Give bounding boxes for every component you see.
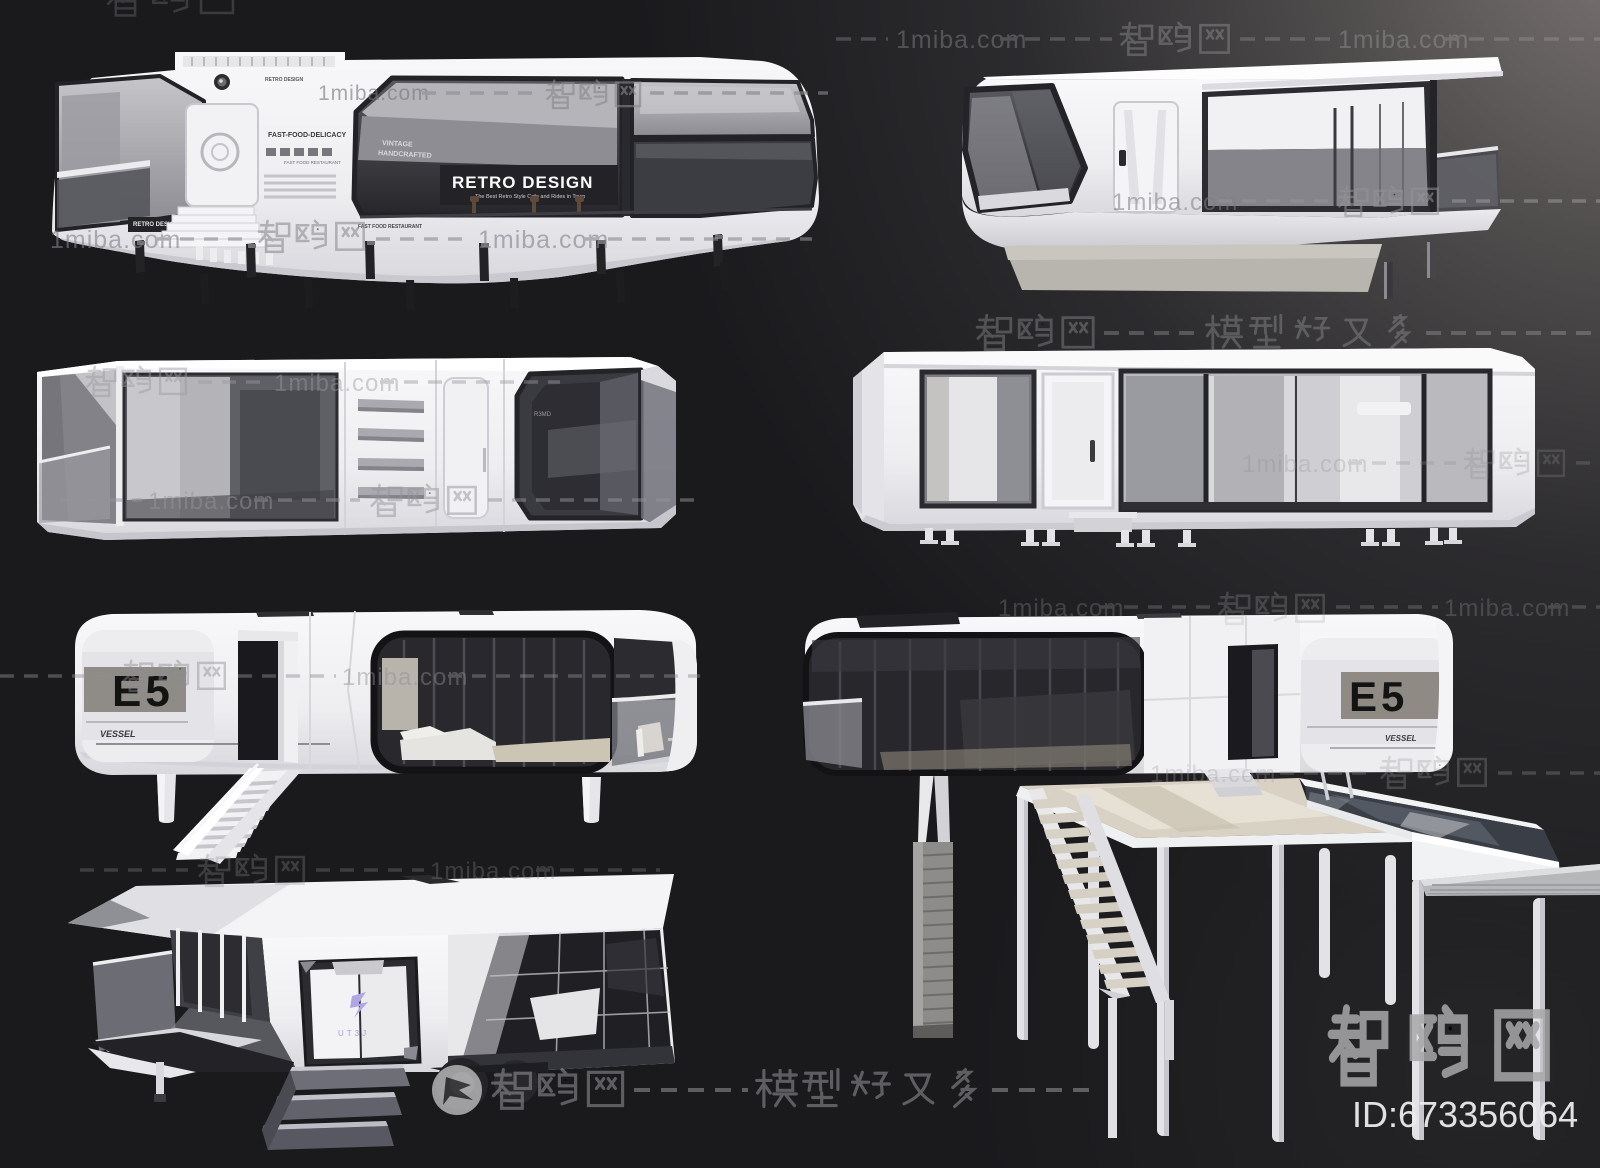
svg-text:VESSEL: VESSEL bbox=[100, 729, 136, 739]
svg-text:UT3J: UT3J bbox=[338, 1029, 369, 1038]
svg-text:ID:673356064: ID:673356064 bbox=[1352, 1094, 1578, 1135]
svg-text:R3MD: R3MD bbox=[534, 412, 552, 418]
svg-text:FAST FOOD RESTAURANT: FAST FOOD RESTAURANT bbox=[284, 160, 341, 165]
svg-text:E5: E5 bbox=[1349, 673, 1408, 720]
svg-text:RETRO DESIGN: RETRO DESIGN bbox=[265, 77, 303, 83]
svg-text:VESSEL: VESSEL bbox=[1385, 734, 1417, 743]
svg-text:FAST FOOD RESTAURANT: FAST FOOD RESTAURANT bbox=[358, 224, 422, 230]
svg-text:1miba.com: 1miba.com bbox=[318, 82, 430, 105]
svg-text:RETRO DESIGN: RETRO DESIGN bbox=[452, 173, 593, 192]
svg-text:FAST-FOOD-DELICACY: FAST-FOOD-DELICACY bbox=[268, 132, 346, 139]
